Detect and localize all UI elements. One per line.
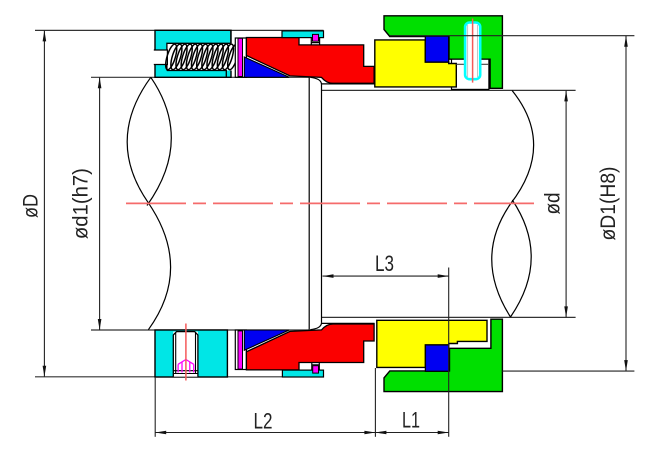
svg-text:ød1(h7): ød1(h7) [70, 168, 93, 239]
svg-text:L1: L1 [402, 408, 420, 433]
svg-text:øD1(H8): øD1(H8) [597, 167, 620, 241]
svg-text:L3: L3 [375, 251, 394, 276]
svg-text:ød: ød [542, 193, 565, 215]
svg-text:L2: L2 [254, 409, 273, 434]
svg-text:øD: øD [20, 194, 43, 218]
